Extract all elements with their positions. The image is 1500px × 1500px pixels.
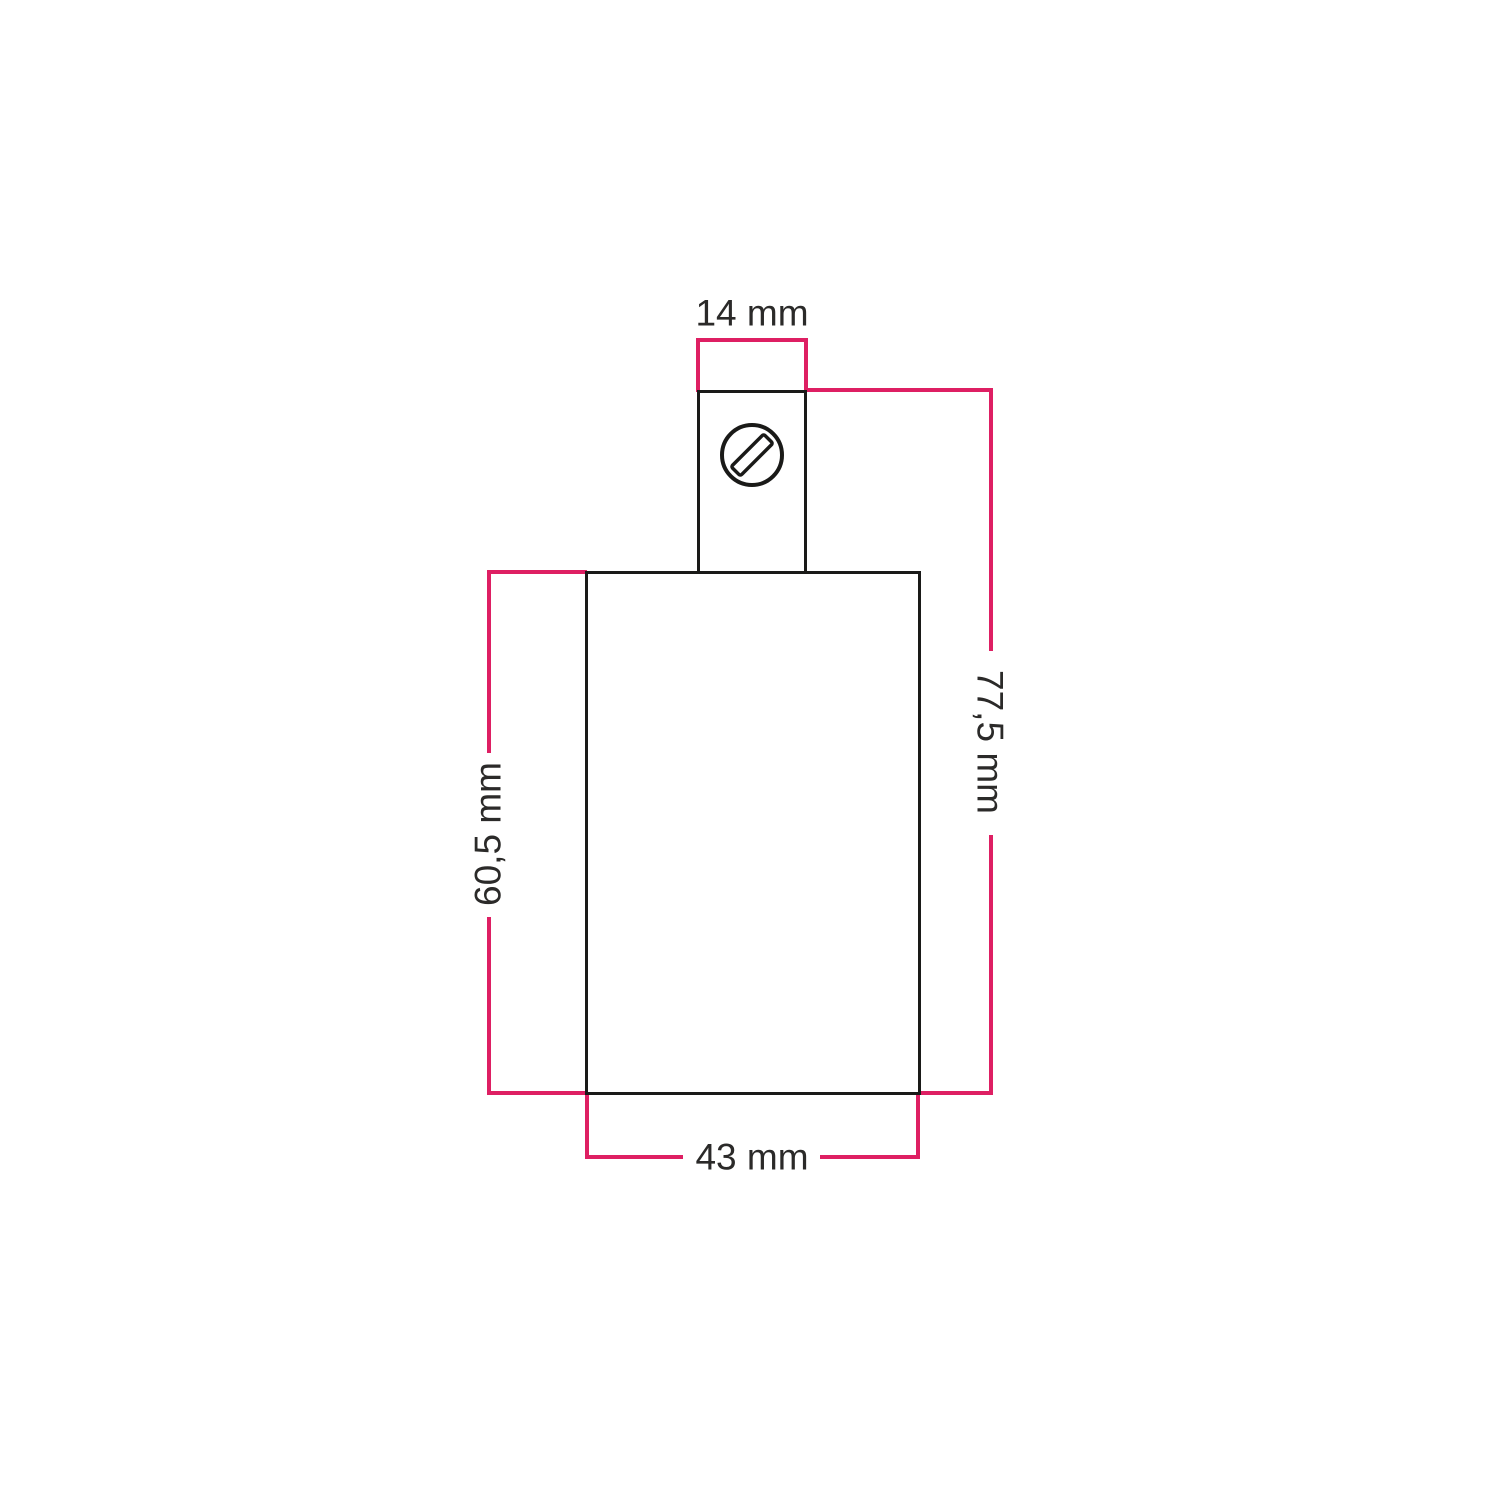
dim-line-top-width — [696, 338, 808, 392]
dim-label-top-width: 14 mm — [695, 295, 808, 332]
dim-line-body-height-lower — [487, 917, 587, 1095]
slotted-screw-head-icon — [717, 420, 787, 490]
dim-label-body-width: 43 mm — [695, 1139, 808, 1176]
dim-line-body-height-upper — [487, 570, 587, 753]
dim-label-body-height: 60,5 mm — [470, 762, 507, 906]
dim-line-total-height-lower — [918, 835, 993, 1095]
dimension-diagram: 14 mm 77,5 mm 60,5 mm 43 mm — [0, 0, 1500, 1500]
dim-line-body-width-right — [820, 1093, 920, 1159]
dim-label-total-height: 77,5 mm — [972, 670, 1009, 814]
lamp-holder-body-outline — [585, 571, 921, 1095]
dim-line-body-width-left — [585, 1093, 683, 1159]
